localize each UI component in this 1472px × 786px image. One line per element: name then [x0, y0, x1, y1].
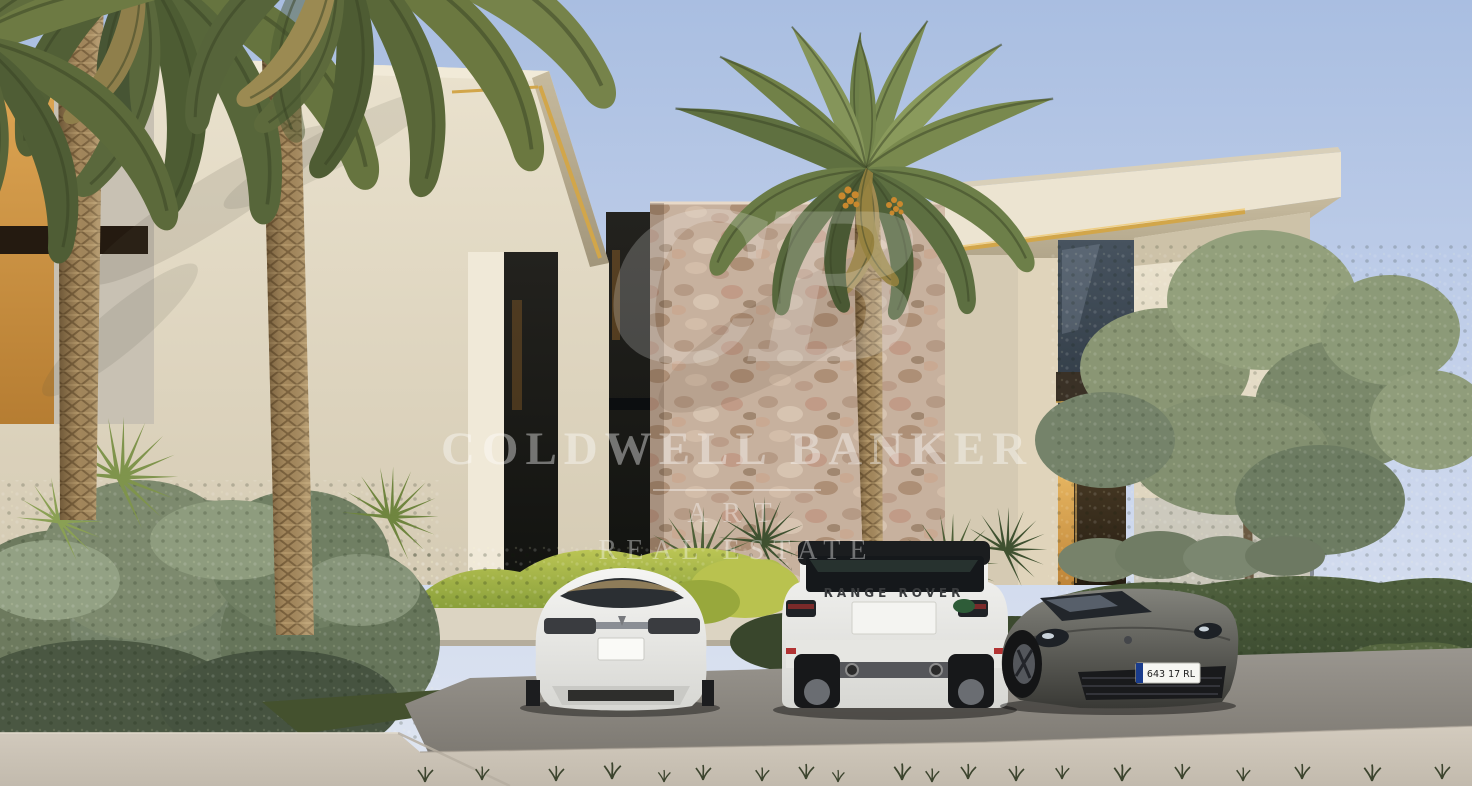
plate-text: 643 17 RL: [1147, 669, 1196, 680]
property-photo: RANGE ROVER 643 17 RL CB: [0, 0, 1472, 786]
villa-render: RANGE ROVER 643 17 RL: [0, 0, 1472, 786]
suv-badge-text: RANGE ROVER: [824, 586, 965, 600]
land-rover-badge: [953, 599, 975, 613]
range-rover-car: RANGE ROVER: [773, 541, 1017, 720]
license-plate-blank: [598, 638, 644, 660]
license-plate: 643 17 RL: [1136, 663, 1200, 683]
porsche-car: 643 17 RL: [1000, 589, 1238, 715]
license-plate-blank: [852, 602, 936, 634]
